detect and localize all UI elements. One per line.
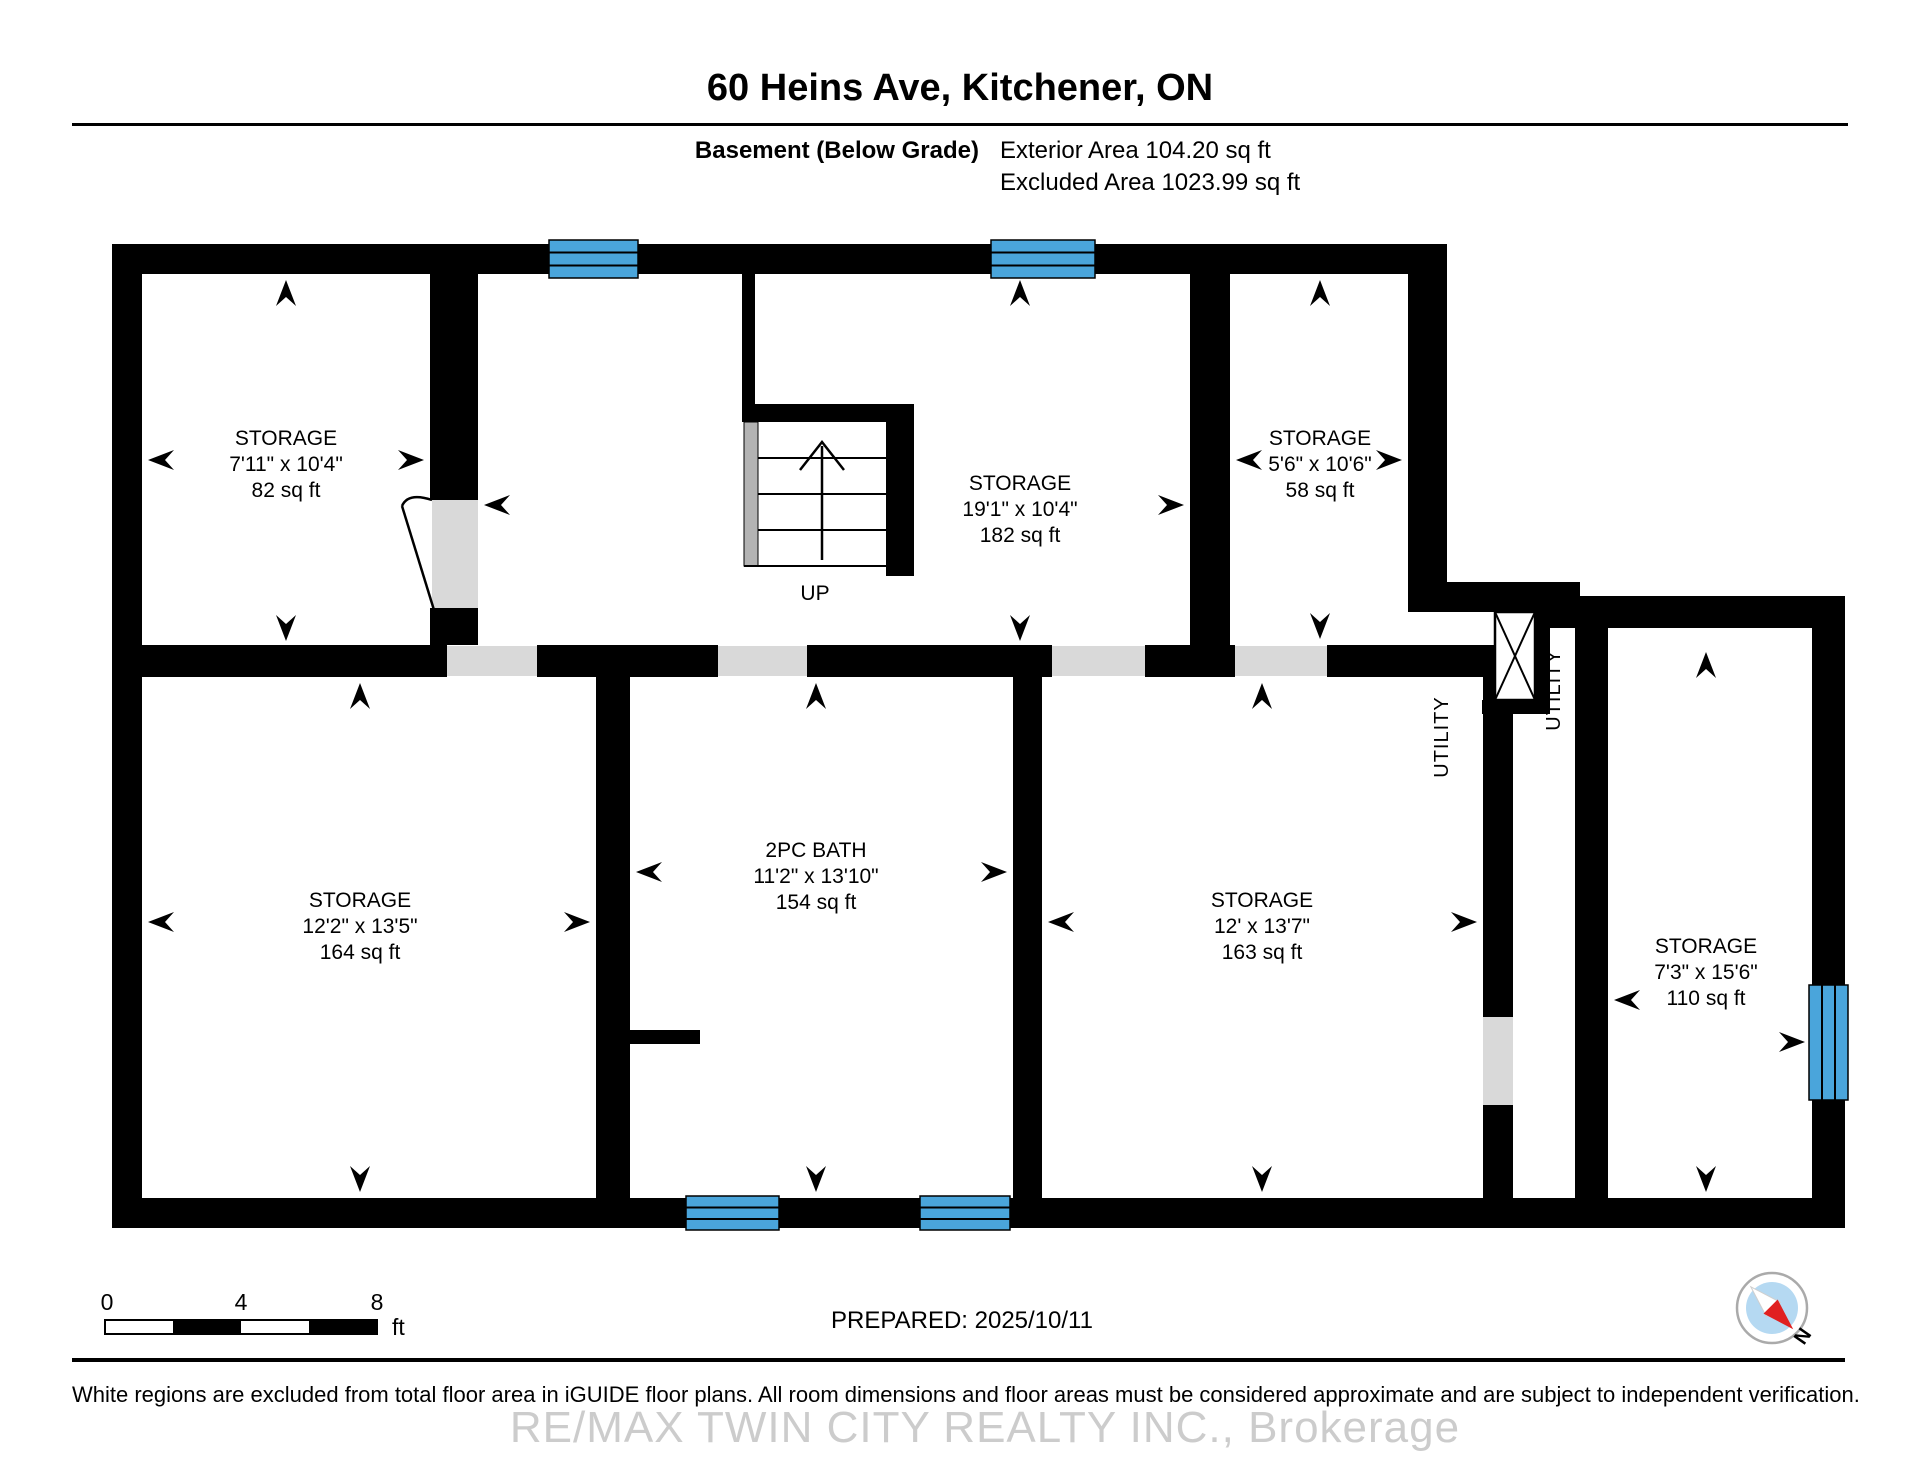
scale-tick-4: 4 [235, 1289, 248, 1315]
wall-bath-right [1013, 677, 1042, 1198]
excluded-area-label: Excluded Area 1023.99 sq ft [1000, 169, 1301, 196]
room-dims: 7'11" x 10'4" [229, 453, 343, 476]
arrow-down-icon [350, 1166, 370, 1192]
wall-segment [1190, 274, 1230, 645]
scale-bar: 0 4 8 ft [101, 1289, 406, 1340]
scale-bar-segment [173, 1320, 241, 1334]
arrow-left-icon [148, 450, 174, 470]
arrow-left-icon [484, 495, 510, 515]
arrow-right-icon [1779, 1032, 1805, 1052]
brokerage-watermark: RE/MAX TWIN CITY REALTY INC., Brokerage [510, 1403, 1460, 1452]
wall-segment [1327, 645, 1513, 677]
wall-left [112, 244, 142, 1228]
floor-plan-page: 60 Heins Ave, Kitchener, ON Basement (Be… [0, 0, 1920, 1484]
room-dims: 12'2" x 13'5" [302, 915, 417, 938]
arrow-right-icon [1158, 495, 1184, 515]
stairs: UP [742, 274, 914, 605]
wall-segment [142, 645, 447, 677]
scale-tick-8: 8 [371, 1289, 384, 1315]
wall-segment [1145, 645, 1235, 677]
floor-label: Basement (Below Grade) [695, 137, 979, 164]
arrow-up-icon [806, 683, 826, 709]
header-divider [72, 123, 1848, 126]
page-title: 60 Heins Ave, Kitchener, ON [707, 67, 1213, 109]
room-name: 2PC BATH [765, 839, 866, 862]
footer-divider [72, 1358, 1845, 1362]
room-name: STORAGE [969, 472, 1071, 495]
arrow-up-icon [1696, 652, 1716, 678]
window [1809, 985, 1848, 1100]
room-area: 154 sq ft [776, 891, 857, 914]
stair-stringer [744, 422, 758, 566]
door-opening [447, 646, 537, 676]
stairs-up-label: UP [800, 582, 829, 605]
room-area: 82 sq ft [252, 479, 321, 502]
door-opening [1235, 646, 1327, 676]
arrow-up-icon [1010, 280, 1030, 306]
room-label-storage-163: STORAGE 12' x 13'7" 163 sq ft [1211, 889, 1313, 964]
arrow-left-icon [1236, 450, 1262, 470]
arrow-up-icon [1310, 280, 1330, 306]
compass-icon: N [1737, 1273, 1816, 1349]
arrow-right-icon [1376, 450, 1402, 470]
wall-stair [742, 274, 755, 408]
room-area: 58 sq ft [1286, 479, 1355, 502]
room-label-storage-110: STORAGE 7'3" x 15'6" 110 sq ft [1654, 935, 1758, 1010]
header: 60 Heins Ave, Kitchener, ON Basement (Be… [72, 67, 1848, 196]
room-dims: 11'2" x 13'10" [753, 865, 878, 888]
room-dims: 7'3" x 15'6" [1654, 961, 1758, 984]
arrow-right-icon [564, 912, 590, 932]
wall-segment [430, 608, 478, 645]
arrow-up-icon [276, 280, 296, 306]
wall-segment [1483, 1105, 1513, 1198]
wall-stub [630, 1030, 700, 1044]
room-name: STORAGE [235, 427, 337, 450]
room-name: STORAGE [1269, 427, 1371, 450]
room-label-bath: 2PC BATH 11'2" x 13'10" 154 sq ft [753, 839, 878, 914]
arrow-left-icon [148, 912, 174, 932]
wall-top [112, 244, 1447, 274]
room-dims: 5'6" x 10'6" [1268, 453, 1372, 476]
room-dims: 19'1" x 10'4" [962, 498, 1077, 521]
wall-stair [886, 404, 914, 576]
arrow-down-icon [1310, 613, 1330, 639]
door-opening [432, 500, 478, 608]
door-leaf [402, 506, 434, 610]
room-label-storage-182: STORAGE 19'1" x 10'4" 182 sq ft [962, 472, 1077, 547]
door-opening [718, 646, 807, 676]
wall-main-right [1408, 244, 1447, 612]
arrow-right-icon [398, 450, 424, 470]
door-openings [402, 497, 1513, 1105]
arrow-down-icon [806, 1166, 826, 1192]
room-area: 164 sq ft [320, 941, 401, 964]
duct-box [1495, 612, 1535, 700]
wall-segment [430, 274, 478, 500]
room-dims: 12' x 13'7" [1214, 915, 1310, 938]
window [920, 1196, 1010, 1230]
room-area: 163 sq ft [1222, 941, 1303, 964]
wall-stub [1482, 700, 1550, 714]
scale-tick-0: 0 [101, 1289, 114, 1315]
walls [112, 244, 1845, 1228]
arrow-left-icon [1048, 912, 1074, 932]
scale-bar-segment [309, 1320, 377, 1334]
arrow-down-icon [1010, 615, 1030, 641]
wall-bath-left [596, 677, 630, 1198]
room-name: STORAGE [1211, 889, 1313, 912]
wall-segment [1483, 677, 1513, 1017]
wall-segment [537, 645, 718, 677]
measure-arrows [148, 280, 1805, 1192]
arrow-down-icon [1252, 1166, 1272, 1192]
arrow-down-icon [1696, 1166, 1716, 1192]
room-area: 182 sq ft [980, 524, 1061, 547]
wall-room6-right [1812, 1100, 1845, 1198]
arrow-up-icon [1252, 683, 1272, 709]
arrow-right-icon [981, 862, 1007, 882]
prepared-date: PREPARED: 2025/10/11 [831, 1307, 1093, 1334]
door-opening [1052, 646, 1145, 676]
room-name: STORAGE [309, 889, 411, 912]
scale-unit-label: ft [392, 1314, 405, 1340]
utility-label: UTILITY [1543, 649, 1565, 730]
wall-segment [807, 645, 1052, 677]
exterior-area-label: Exterior Area 104.20 sq ft [1000, 137, 1271, 164]
room-area: 110 sq ft [1667, 987, 1746, 1010]
room-label-storage-58: STORAGE 5'6" x 10'6" 58 sq ft [1268, 427, 1372, 502]
window [549, 240, 638, 278]
wall-room6-right [1812, 596, 1845, 985]
arrow-down-icon [276, 615, 296, 641]
window [686, 1196, 779, 1230]
room-name: STORAGE [1655, 935, 1757, 958]
arrow-up-icon [350, 683, 370, 709]
room-label-storage-164: STORAGE 12'2" x 13'5" 164 sq ft [302, 889, 417, 964]
arrow-left-icon [636, 862, 662, 882]
wall-room6-top [1550, 596, 1845, 628]
utility-label: UTILITY [1431, 696, 1453, 777]
door-arc [402, 497, 432, 506]
arrow-right-icon [1451, 912, 1477, 932]
arrow-left-icon [1614, 990, 1640, 1010]
door-opening [1483, 1017, 1513, 1105]
window [991, 240, 1095, 278]
room-label-storage-82: STORAGE 7'11" x 10'4" 82 sq ft [229, 427, 343, 502]
wall-room6-left [1575, 628, 1608, 1198]
